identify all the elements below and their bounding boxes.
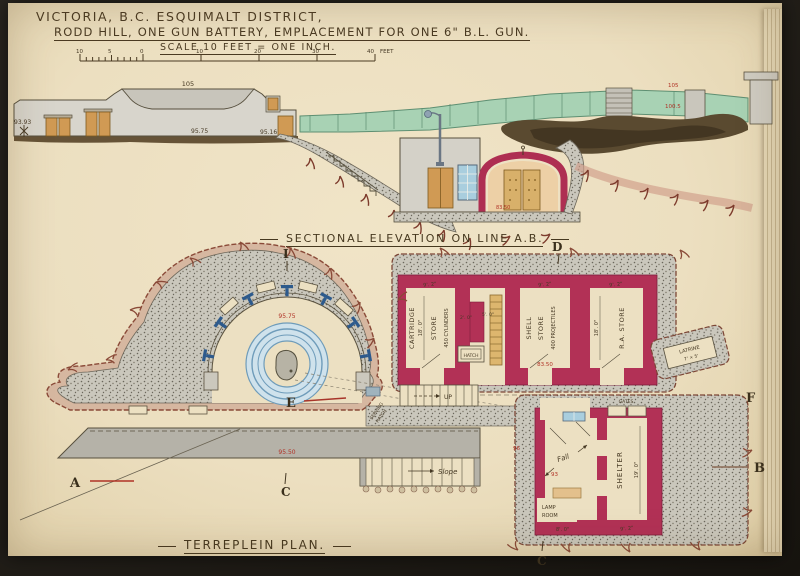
section-letter-i: I <box>283 247 289 261</box>
section-letter-e: E <box>286 396 296 411</box>
scale-tick-10L: 10 <box>76 49 83 55</box>
terreplein-level-label: 95.50 <box>278 449 295 456</box>
c-stub <box>285 473 286 484</box>
pilaster-left <box>204 372 218 390</box>
section-letter-b: B <box>754 461 765 476</box>
scale-tick-0: 0 <box>140 49 144 55</box>
shell-floor-level: 83.50 <box>537 362 553 368</box>
lobby-stub-wall <box>470 302 484 342</box>
ra-length: 18'. 0" <box>594 320 600 336</box>
slope-top-level: 95.16 <box>260 129 277 136</box>
cartridge-name-3: 450 CYLINDERS <box>444 308 450 347</box>
scale-tick-30: 30 <box>312 49 319 55</box>
cartridge-name-2: STORE <box>430 316 438 340</box>
caption-dash <box>158 546 176 547</box>
lamp-room-width: 8'. 0" <box>556 527 569 533</box>
title-line-1: VICTORIA, B.C. ESQUIMALT DISTRICT, <box>36 9 323 24</box>
up-label: UP <box>444 394 452 401</box>
title-line-2: RODD HILL, ONE GUN BATTERY, EMPLACEMENT … <box>54 25 530 41</box>
sectional-elevation: 93.93 105 95.75 95.16 105 100.5 <box>10 70 790 248</box>
shelter-door-gap-2 <box>597 480 607 496</box>
mid-pillar <box>685 90 705 120</box>
shell-name-1: SHELL <box>525 317 533 340</box>
scale-tick-40: 40 <box>367 49 374 55</box>
front-wall <box>58 428 480 458</box>
magazine-floor-band <box>394 212 580 222</box>
lamp-room-label-2: ROOM <box>542 513 558 519</box>
shelter-length: 19'. 0" <box>634 462 640 478</box>
stairs-up: UP <box>400 385 478 406</box>
shelter-door-gap-1 <box>597 440 607 456</box>
root-wash <box>576 166 752 208</box>
arch-door-right <box>523 170 540 210</box>
slope-word: Slope <box>438 468 457 476</box>
ra-name: R.A. STORE <box>618 307 626 349</box>
pivot-hole <box>276 350 297 380</box>
hatch: HATCH <box>458 346 484 362</box>
lamp-room-label-1: LAMP <box>542 505 556 511</box>
plan-caption-text: TERREPLEIN PLAN. <box>184 538 325 554</box>
ra-door-gap <box>600 368 624 385</box>
ground-soil <box>14 136 298 144</box>
cartridge-door-gap <box>420 368 444 385</box>
section-letter-a: A <box>69 476 81 491</box>
hatch-label: HATCH <box>463 353 478 359</box>
scale-bar: 10 5 0 10 20 30 40 FEET <box>68 47 488 71</box>
stair-rail <box>326 152 378 190</box>
scale-tick-10: 10 <box>196 49 203 55</box>
scale-tick-20: 20 <box>254 49 261 55</box>
court-level: 96 <box>513 446 520 452</box>
crest-level: 105 <box>182 80 194 88</box>
shell-door-gap <box>528 368 552 385</box>
shell-name-3: 400 PROJECTILES <box>551 306 557 349</box>
stair-stones <box>363 486 477 493</box>
arch-door-left <box>504 170 521 210</box>
fall-level: 93 <box>551 472 558 478</box>
lobby-dim2: 5'. 0" <box>482 312 494 318</box>
caption-dash <box>333 546 351 547</box>
terreplein-plan: 95.75 E I C 95.50 A <box>10 240 790 575</box>
drawing-sheet: VICTORIA, B.C. ESQUIMALT DISTRICT, RODD … <box>8 3 782 556</box>
stairs-down: Slope <box>360 458 480 493</box>
emplacement-pit-section <box>122 89 254 109</box>
section-letter-c: C <box>281 485 291 499</box>
bench-level: 93.93 <box>14 119 31 126</box>
entry-window <box>563 412 585 421</box>
lamp-shelf <box>553 488 581 498</box>
lobby-dim1: 2'. 0" <box>460 315 472 321</box>
fence-steps-section <box>606 88 632 116</box>
emplacement-level: 95.75 <box>278 313 295 320</box>
plan-caption: TERREPLEIN PLAN. <box>158 538 351 554</box>
shelter-room <box>607 418 647 520</box>
gun-racer-rings <box>246 323 328 405</box>
right-pillar <box>744 72 778 124</box>
red-level-lower: 100.5 <box>665 104 681 110</box>
shelter-name: SHELTER <box>616 451 624 489</box>
photographed-drawing: VICTORIA, B.C. ESQUIMALT DISTRICT, RODD … <box>0 0 800 576</box>
section-letter-d: D <box>552 240 562 254</box>
scale-unit: FEET <box>380 49 394 55</box>
cartridge-length: 18'. 0" <box>418 320 424 336</box>
section-letter-c2: C <box>537 554 547 568</box>
terreplein-level: 95.75 <box>191 128 208 135</box>
red-level-upper: 105 <box>668 83 679 89</box>
scale-tick-5: 5 <box>108 49 112 55</box>
magazine-floor-level: 83.50 <box>496 205 510 211</box>
cartridge-name-1: CARTRIDGE <box>408 307 416 349</box>
shell-name-2: STORE <box>537 316 545 340</box>
ladder <box>490 295 502 365</box>
gates-label: GATES <box>619 399 634 405</box>
